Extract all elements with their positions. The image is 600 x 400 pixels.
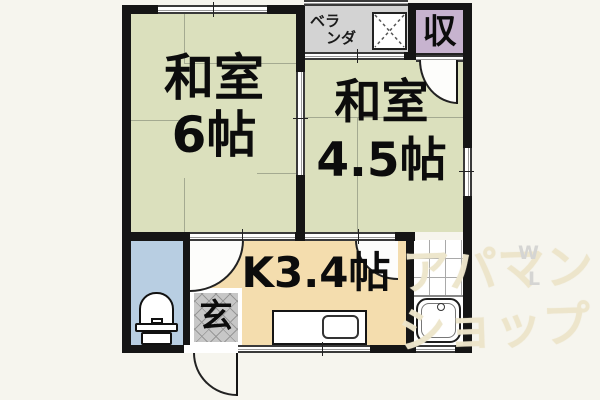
door-panel-entrance: [236, 353, 238, 396]
kitchen-sink: [322, 315, 359, 339]
wall-segment: [122, 345, 184, 353]
tick-mark: [213, 2, 214, 17]
entrance-label: 玄: [190, 298, 242, 334]
tick-mark: [322, 342, 323, 356]
wall-segment: [122, 5, 158, 14]
wall-segment: [183, 240, 190, 345]
tick-mark: [358, 229, 359, 244]
toilet-lid-notch: [151, 318, 163, 324]
veranda-label-line1: ベラ: [310, 13, 372, 30]
veranda-label-line2: ンダ: [326, 30, 372, 47]
wall-segment: [463, 3, 472, 148]
window: [238, 345, 370, 353]
room-name: 和室: [131, 50, 297, 107]
toilet-seat-bar: [135, 323, 178, 332]
tatami-seam: [184, 178, 185, 232]
room-label-washitsu6: 和室 6帖: [131, 50, 297, 164]
wall-segment: [295, 232, 305, 241]
room-label-washitsu45: 和室 4.5帖: [300, 74, 463, 190]
storage-label: 収: [416, 13, 463, 51]
washing-machine-pan: [372, 12, 407, 50]
x-cross-icon: [374, 14, 405, 48]
wall-segment: [404, 52, 416, 60]
toilet-tank: [141, 332, 172, 345]
watermark-letter-l: L: [528, 268, 540, 290]
tick-mark: [242, 229, 243, 244]
wall-segment: [122, 232, 190, 241]
entrance-opening: [184, 345, 238, 353]
window: [463, 148, 472, 196]
wall-segment: [296, 5, 305, 72]
sliding-door: [305, 232, 395, 241]
tatami-seam: [257, 173, 296, 174]
kitchen-counter: [272, 310, 367, 345]
watermark-line2: ショップ: [397, 285, 591, 362]
floor-plan: 和室 6帖 和室 4.5帖 K3.4帖 ベラ ンダ 収 玄 アパマン ショップ …: [0, 0, 600, 400]
tick-mark: [357, 49, 358, 63]
room-name: 和室: [300, 74, 463, 132]
window: [305, 52, 404, 60]
room-size: 4.5帖: [300, 132, 463, 190]
room-label-kitchen: K3.4帖: [216, 248, 416, 298]
watermark-letter-w: W: [518, 242, 539, 264]
wall-segment: [416, 3, 463, 10]
veranda-rail: [304, 0, 408, 6]
wall-segment: [122, 5, 131, 353]
veranda-label: ベラ ンダ: [310, 13, 372, 47]
door-arc-entrance: [193, 353, 237, 396]
wall-segment: [408, 3, 416, 57]
room-size: 6帖: [131, 107, 297, 164]
